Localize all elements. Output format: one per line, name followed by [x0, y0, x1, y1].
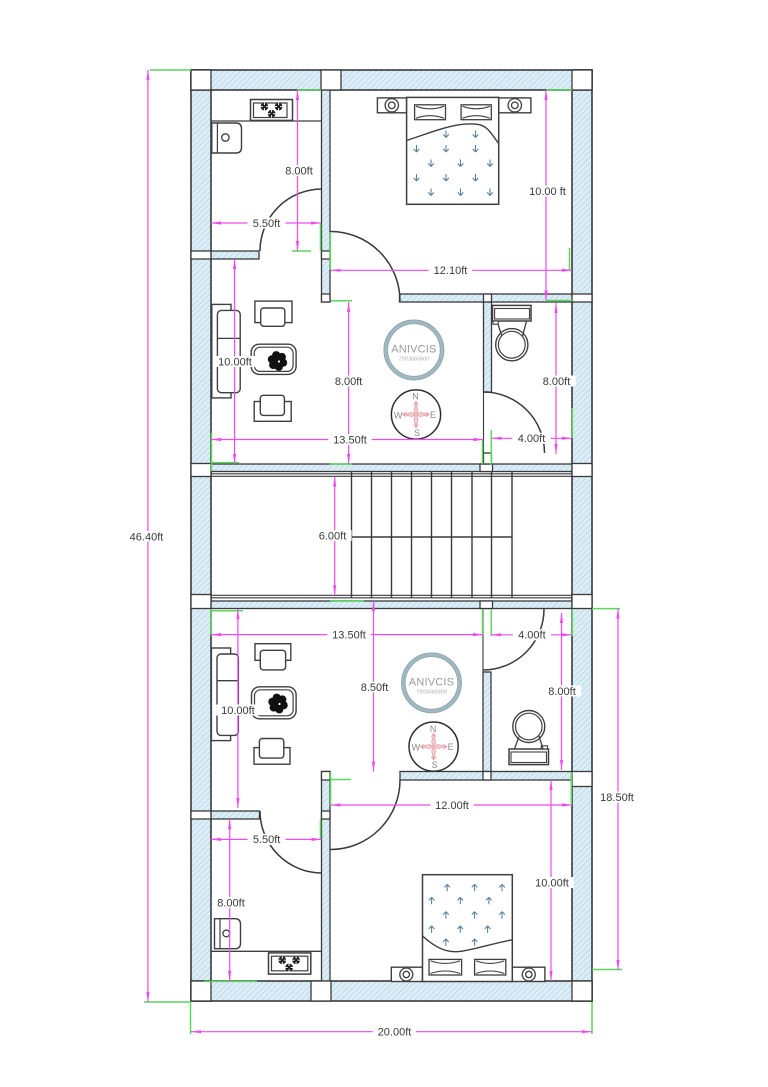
svg-text:N: N	[412, 392, 419, 402]
svg-text:5.50ft: 5.50ft	[253, 834, 281, 846]
svg-text:12.00ft: 12.00ft	[435, 800, 469, 812]
svg-text:8.00ft: 8.00ft	[217, 897, 245, 909]
svg-text:W: W	[394, 410, 403, 420]
svg-text:7903666800: 7903666800	[416, 689, 448, 695]
svg-text:8.00ft: 8.00ft	[543, 376, 571, 388]
svg-text:8.00ft: 8.00ft	[335, 376, 363, 388]
svg-text:5.50ft: 5.50ft	[253, 218, 281, 230]
svg-text:S: S	[432, 760, 438, 770]
svg-text:12.10ft: 12.10ft	[434, 265, 468, 277]
svg-text:8.50ft: 8.50ft	[361, 682, 389, 694]
svg-text:10.00 ft: 10.00 ft	[529, 186, 566, 198]
svg-text:8.00ft: 8.00ft	[285, 165, 313, 177]
svg-text:7903666800: 7903666800	[399, 357, 431, 363]
svg-text:ANIVCIS: ANIVCIS	[391, 344, 436, 356]
svg-text:S: S	[414, 428, 420, 438]
svg-text:N: N	[430, 724, 437, 734]
svg-text:8.00ft: 8.00ft	[548, 686, 576, 698]
svg-text:4.00ft: 4.00ft	[518, 630, 546, 642]
svg-text:10.00ft: 10.00ft	[535, 877, 569, 889]
svg-text:E: E	[430, 410, 436, 420]
svg-text:4.00ft: 4.00ft	[518, 433, 546, 445]
svg-text:20.00ft: 20.00ft	[378, 1027, 412, 1039]
svg-text:ANIVCIS: ANIVCIS	[409, 676, 454, 688]
svg-text:46.40ft: 46.40ft	[130, 531, 164, 543]
svg-text:18.50ft: 18.50ft	[600, 792, 634, 804]
svg-text:13.50ft: 13.50ft	[332, 629, 366, 641]
svg-text:13.50ft: 13.50ft	[333, 434, 367, 446]
svg-text:W: W	[412, 743, 421, 753]
svg-text:6.00ft: 6.00ft	[319, 530, 347, 542]
svg-text:E: E	[448, 742, 454, 752]
svg-text:10.00ft: 10.00ft	[221, 705, 255, 717]
svg-text:10.00ft: 10.00ft	[218, 356, 252, 368]
